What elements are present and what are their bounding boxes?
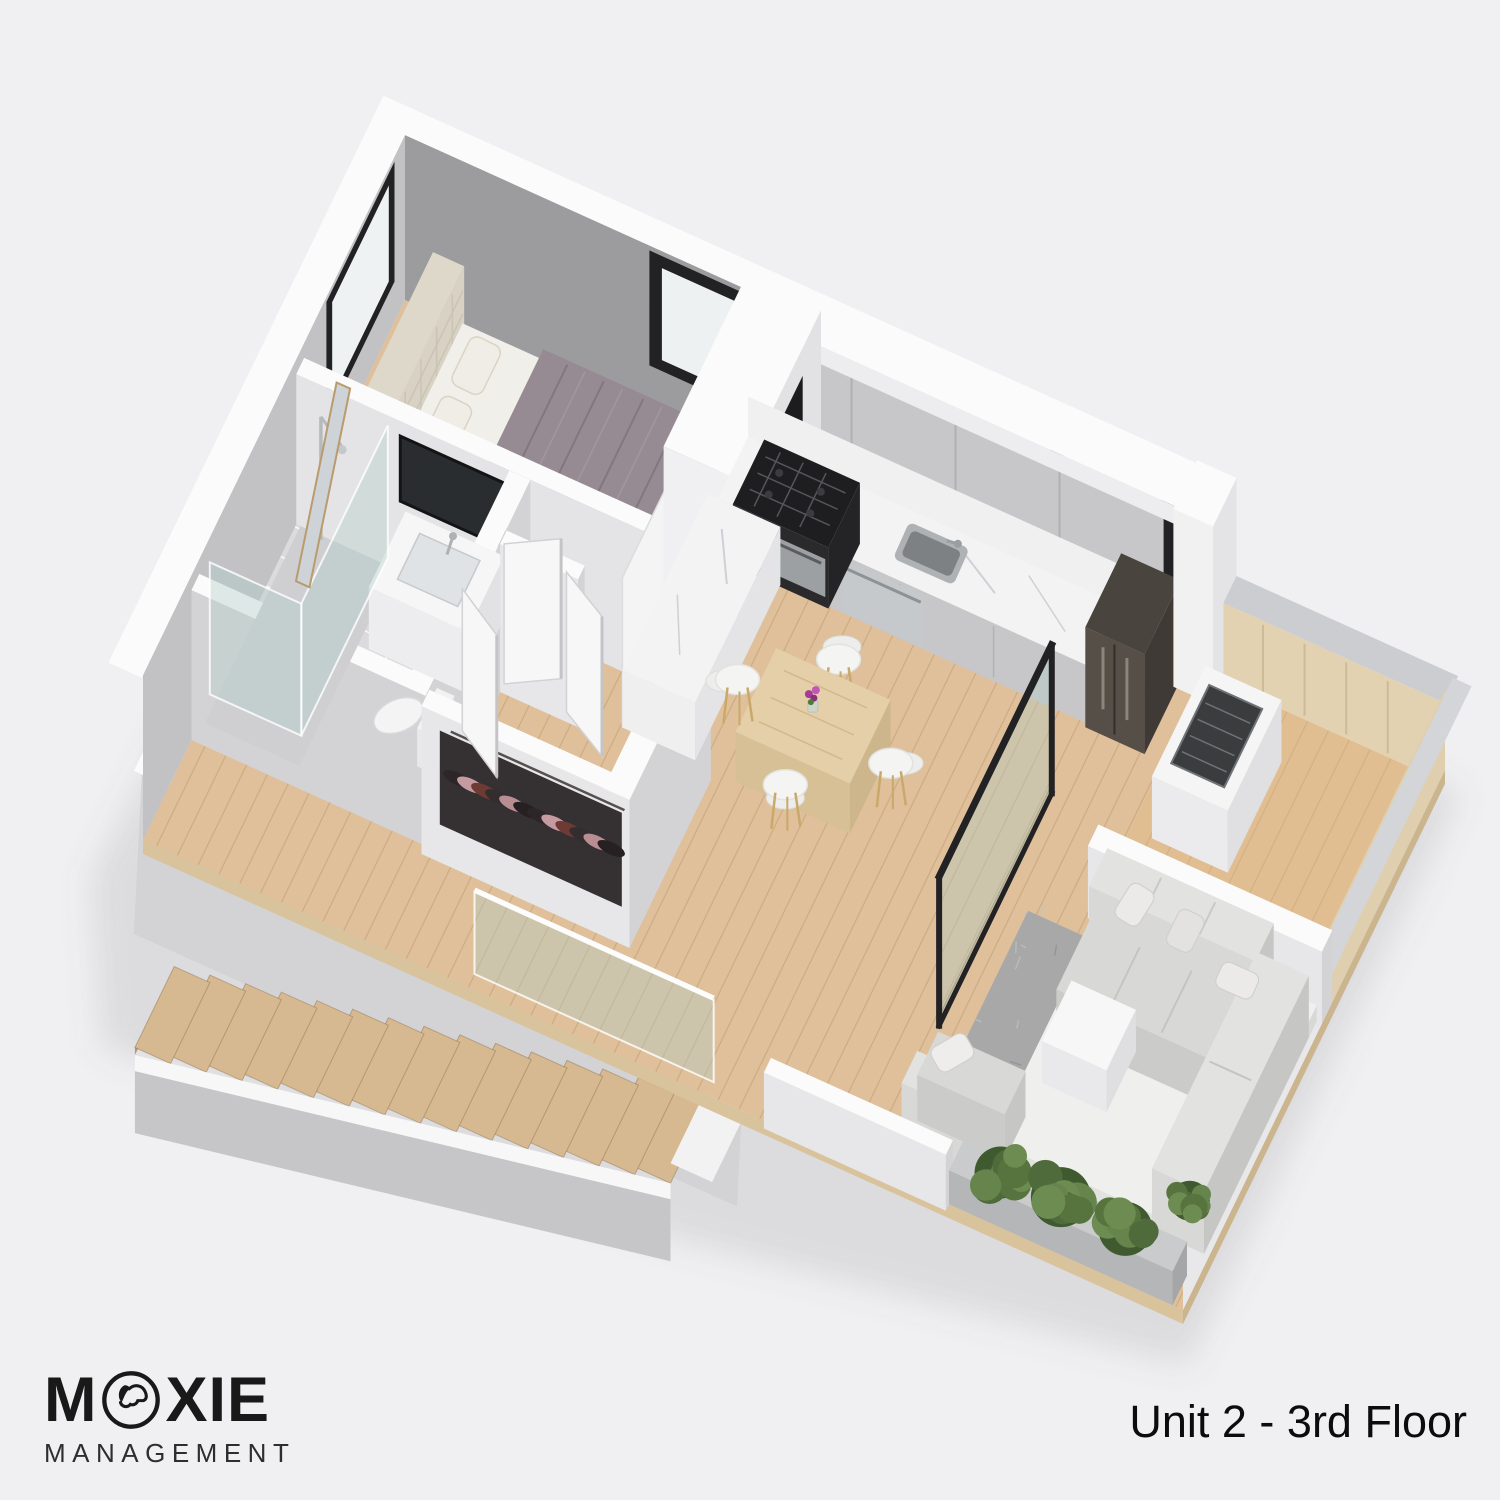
logo-subtitle: MANAGEMENT xyxy=(44,1438,295,1469)
logo-word-start: M xyxy=(44,1369,97,1432)
logo-wordmark: M XIE xyxy=(44,1368,295,1432)
logo-word-end: XIE xyxy=(165,1369,270,1432)
floor-plan-render xyxy=(0,0,1500,1500)
dog-head-icon xyxy=(100,1369,162,1431)
unit-caption: Unit 2 - 3rd Floor xyxy=(1129,1396,1467,1448)
moxie-logo: M XIE MANAGEMENT xyxy=(44,1368,295,1469)
